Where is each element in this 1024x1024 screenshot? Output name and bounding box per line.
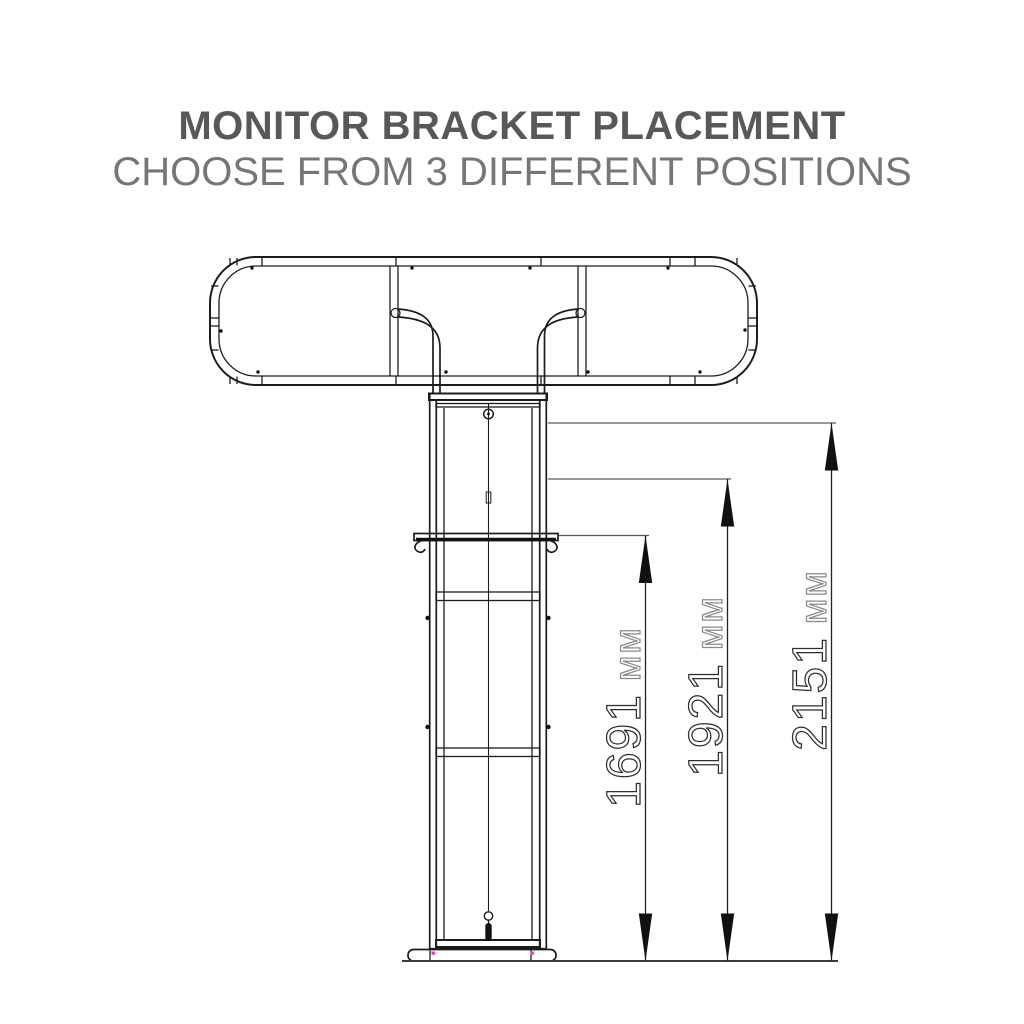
dimension-1691: 1691мм — [559, 536, 652, 962]
frame-segment-ticks-top — [230, 258, 737, 266]
page: MONITOR BRACKET PLACEMENT CHOOSE FROM 3 … — [0, 0, 1024, 1024]
frame-segment-ticks-sides — [211, 286, 756, 350]
turnbuckle-bottom — [484, 912, 492, 941]
right-vertical-tube — [578, 266, 586, 376]
frame-segment-ticks-bottom — [230, 377, 737, 385]
left-vertical-tube — [390, 266, 398, 376]
dimension-label-2151: 2151мм — [784, 569, 837, 751]
header-beam-frame — [210, 257, 757, 385]
base-accent-dot-right — [531, 952, 534, 955]
base-plate — [408, 950, 556, 962]
dimension-label-1921: 1921мм — [680, 595, 733, 777]
diagram-svg: 1691мм 1921мм 2151мм — [0, 0, 1024, 1024]
base-accent-dot-left — [432, 952, 435, 955]
dimension-label-1691: 1691мм — [598, 626, 651, 808]
hanging-cable — [484, 404, 494, 941]
frame-snap-dots — [219, 266, 746, 373]
